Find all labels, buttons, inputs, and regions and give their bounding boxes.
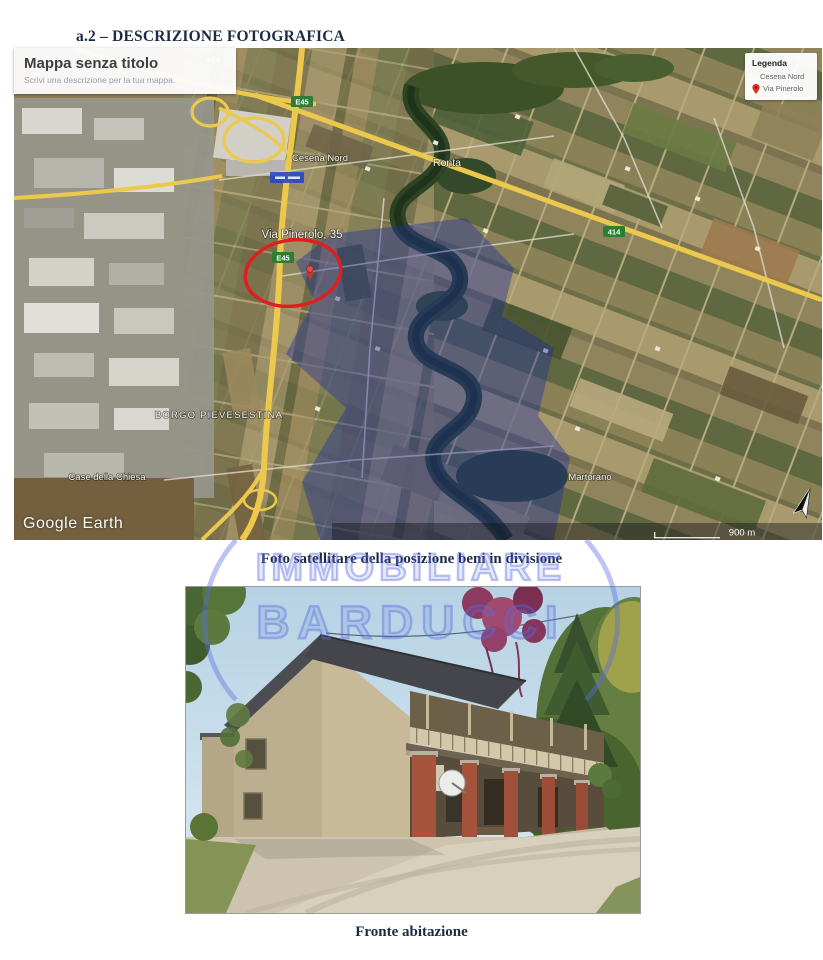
scale-label: 900 m [729, 528, 755, 539]
legend-item-pin-label: Via Pinerolo [763, 83, 803, 95]
label-borgo-pievesestina: BORGO PIEVESESTINA [155, 410, 283, 421]
map-subtitle: Scrivi una descrizione per la tua mappa. [24, 75, 226, 85]
scale-bar: 900 m [332, 523, 822, 540]
label-martorano: Martorano [568, 472, 611, 483]
satellite-map-figure: A14 E45 E45 414 Cesena Nord Ronta Via Pi… [14, 48, 822, 540]
label-case-della-chiesa: Case della Chiesa [68, 472, 146, 483]
satellite-map-art: A14 E45 E45 414 Cesena Nord Ronta Via Pi… [14, 48, 822, 540]
shield-e45-site: E45 [276, 254, 289, 263]
shield-e45-top: E45 [295, 98, 308, 107]
house-caption: Fronte abitazione [0, 924, 823, 941]
satellite-caption: Foto satellitare della posizione beni in… [0, 551, 823, 568]
legend-title: Legenda [752, 58, 810, 68]
legend-item-region: Cesena Nord [752, 71, 810, 83]
house-photo [185, 586, 641, 914]
legend-item-region-label: Cesena Nord [760, 71, 804, 83]
label-ronta: Ronta [433, 157, 461, 169]
map-title: Mappa senza titolo [24, 55, 226, 72]
google-earth-credit: Google Earth [23, 515, 123, 533]
legend-item-pin: Via Pinerolo [752, 83, 810, 95]
document-page: a.2 – DESCRIZIONE FOTOGRAFICA [0, 0, 823, 960]
section-heading: a.2 – DESCRIZIONE FOTOGRAFICA [76, 28, 345, 46]
map-title-box: Mappa senza titolo Scrivi una descrizion… [14, 48, 236, 94]
map-legend: Legenda Cesena Nord Via Pinerolo [745, 53, 817, 100]
shield-414: 414 [608, 228, 621, 237]
label-cesena-nord: Cesena Nord [292, 153, 348, 164]
blue-motorway-sign [270, 172, 304, 183]
map-pin-icon [752, 84, 760, 94]
house-photo-art [186, 587, 640, 913]
